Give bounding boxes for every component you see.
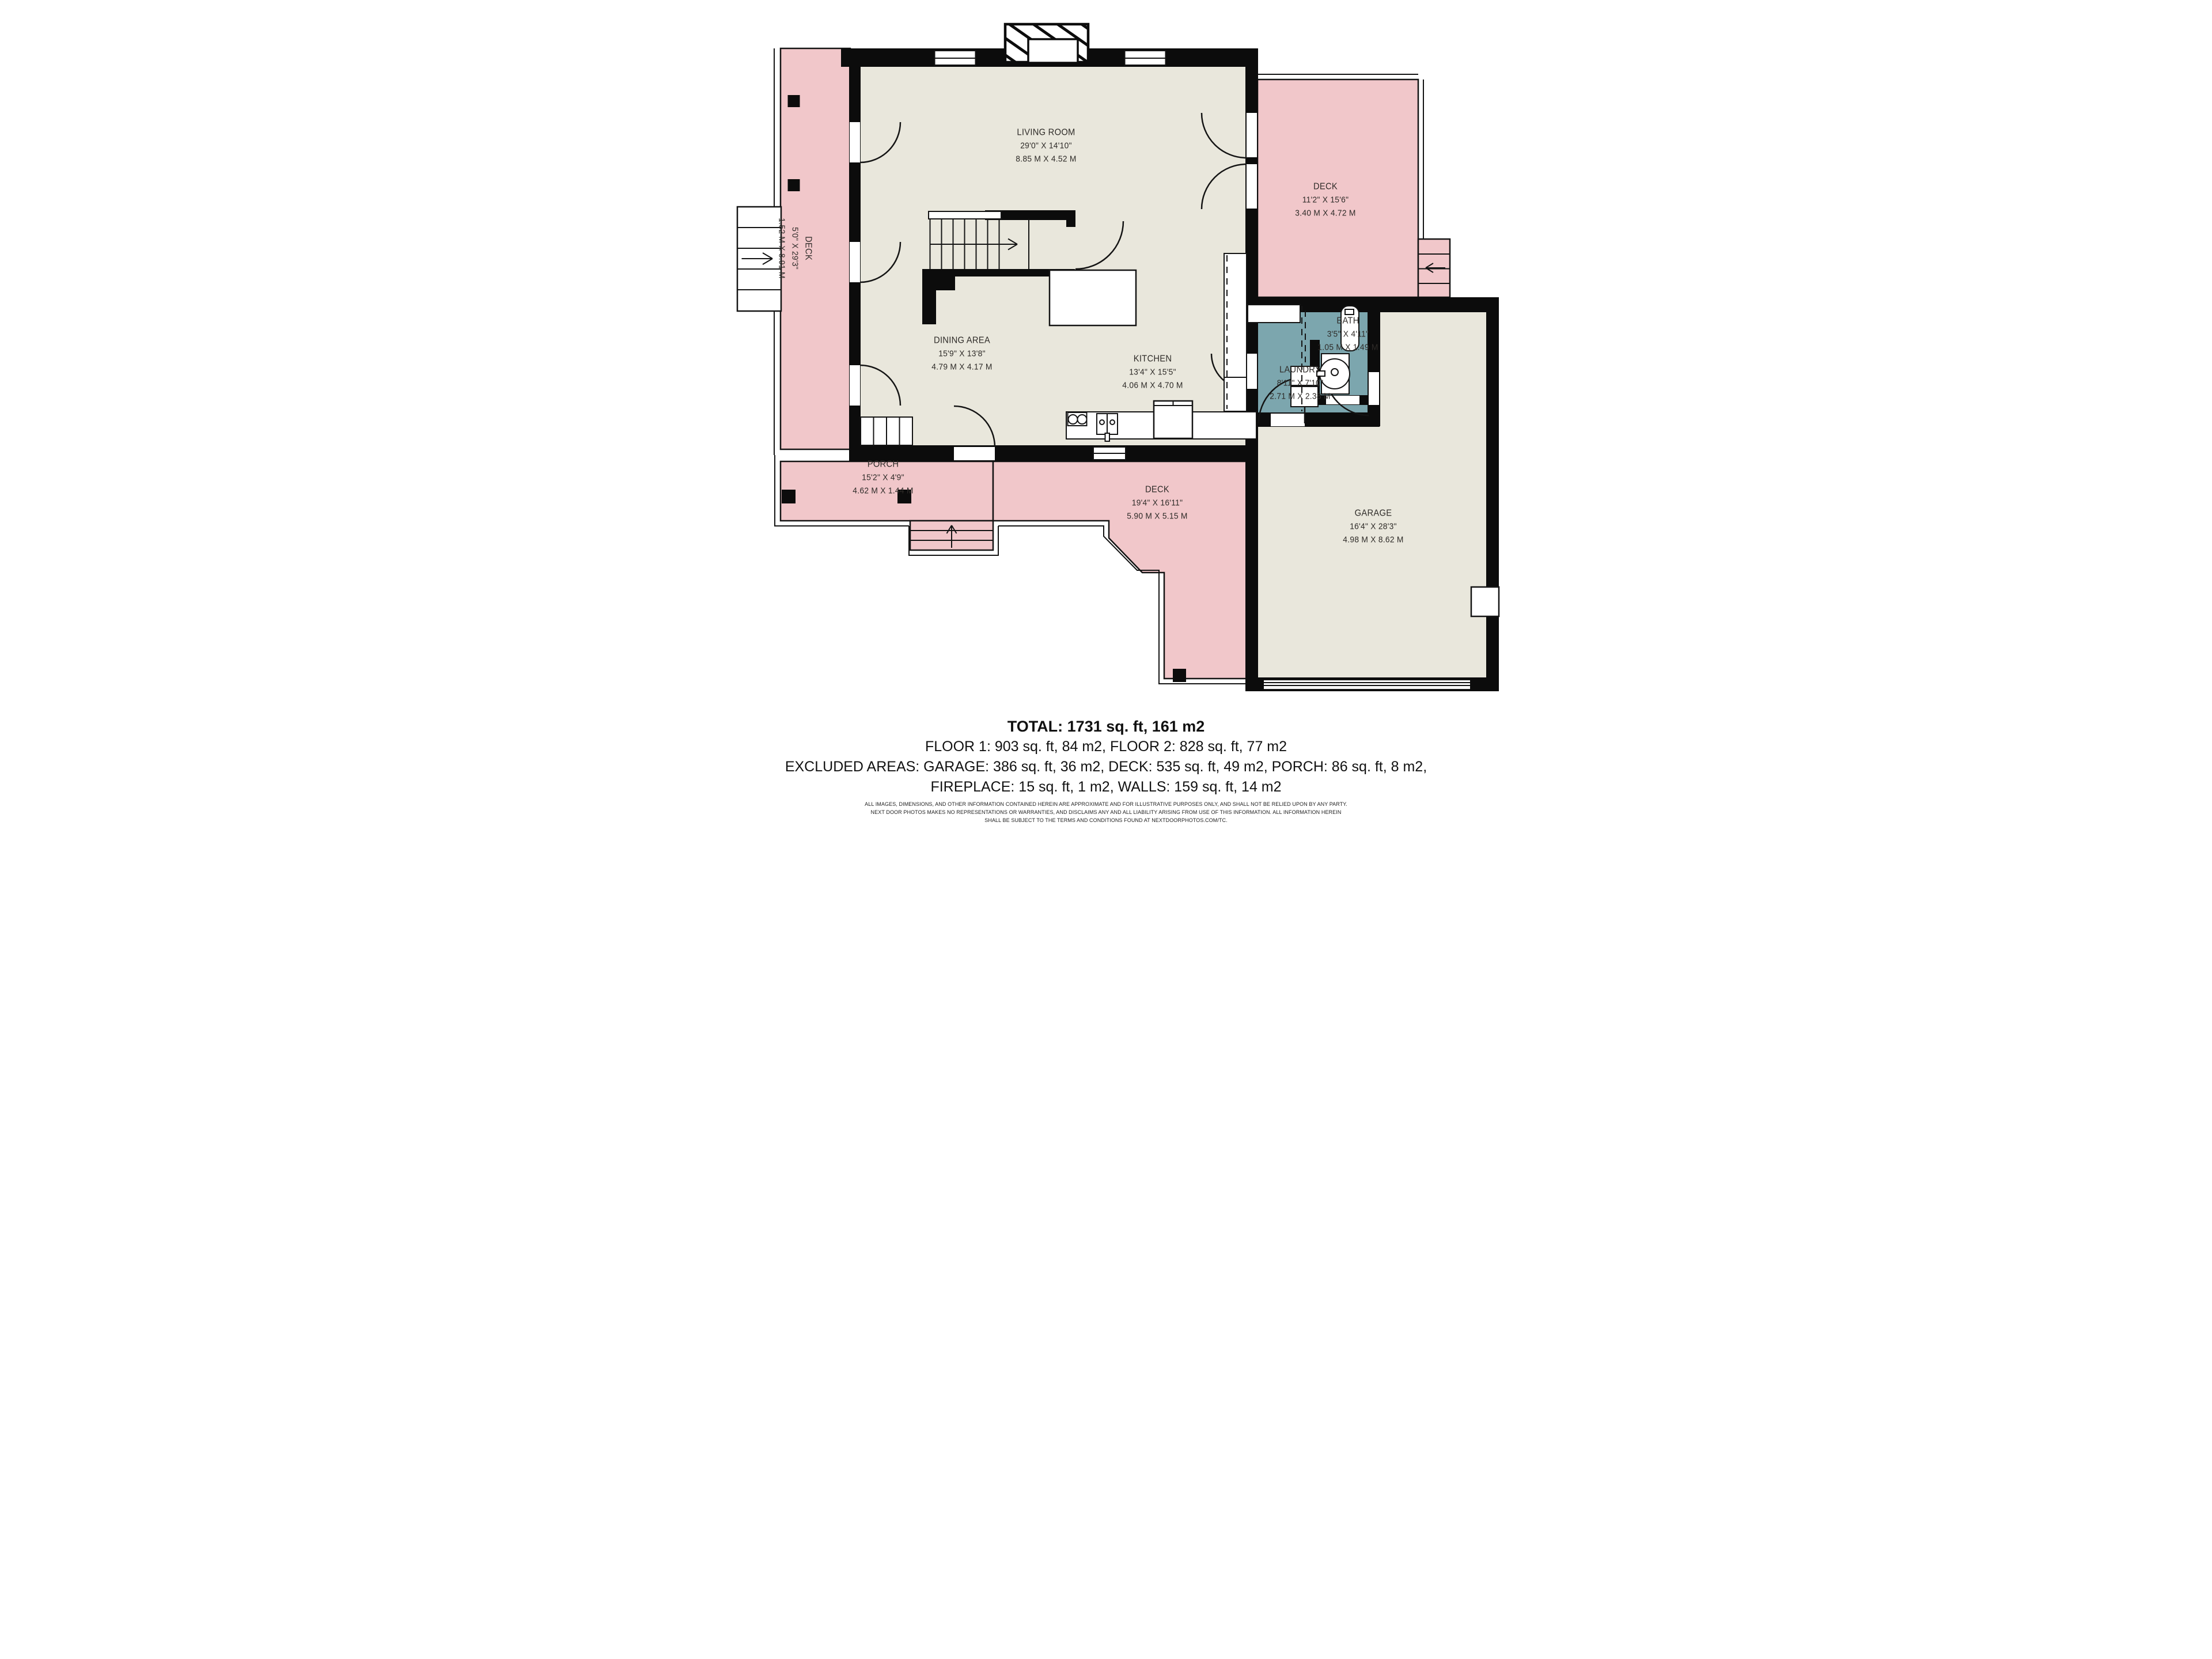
summary-total: TOTAL: 1731 sq. ft, 161 m2 <box>553 718 1659 736</box>
room-label-bath: BATH 3'5" X 4'11" 1.05 M X 1.49 M <box>1317 315 1378 354</box>
room-name: PORCH <box>853 458 913 472</box>
room-dims-metric: 2.71 M X 2.38 M <box>1270 390 1330 403</box>
laundry-counter <box>1248 305 1300 323</box>
room-name: LAUNDRY <box>1270 363 1330 377</box>
room-dims-imperial: 11'2" X 15'6" <box>1295 194 1355 207</box>
room-label-dining-area: DINING AREA 15'9" X 13'8" 4.79 M X 4.17 … <box>931 334 992 374</box>
summary-excluded-areas-2: FIREPLACE: 15 sq. ft, 1 m2, WALLS: 159 s… <box>553 779 1659 796</box>
room-dims-imperial: 15'9" X 13'8" <box>931 348 992 361</box>
room-label-laundry: LAUNDRY 8'11" X 7'10" 2.71 M X 2.38 M <box>1270 363 1330 403</box>
disclaimer-line-3: SHALL BE SUBJECT TO THE TERMS AND CONDIT… <box>553 817 1659 825</box>
faucet <box>1105 433 1110 441</box>
closet-shelving <box>861 417 912 445</box>
room-dims-metric: 3.40 M X 4.72 M <box>1295 207 1355 220</box>
room-dims-imperial: 3'5" X 4'11" <box>1317 328 1378 342</box>
floor-plan-drawing <box>553 0 1659 829</box>
deck-bottom-shape <box>993 461 1256 684</box>
summary-floors: FLOOR 1: 903 sq. ft, 84 m2, FLOOR 2: 828… <box>553 738 1659 755</box>
chimney-fireplace <box>1005 24 1088 63</box>
room-dims-imperial: 8'11" X 7'10" <box>1270 377 1330 391</box>
room-dims-metric: 1.05 M X 1.49 M <box>1317 341 1378 354</box>
room-label-porch: PORCH 15'2" X 4'9" 4.62 M X 1.44 M <box>853 458 913 498</box>
room-name: DECK <box>801 218 815 278</box>
stairs-right <box>1418 239 1450 297</box>
room-dims-metric: 8.85 M X 4.52 M <box>1016 153 1076 166</box>
room-dims-imperial: 16'4" X 28'3" <box>1343 521 1403 534</box>
area-summary: TOTAL: 1731 sq. ft, 161 m2 FLOOR 1: 903 … <box>553 718 1659 825</box>
room-name: LIVING ROOM <box>1016 126 1076 140</box>
disclaimer-line-2: NEXT DOOR PHOTOS MAKES NO REPRESENTATION… <box>553 809 1659 817</box>
stairs-porch <box>909 521 998 555</box>
room-name: BATH <box>1317 315 1378 328</box>
room-label-deck-left: DECK 5'0" X 29'3" 1.52 M X 8.91 M <box>775 218 815 278</box>
room-dims-imperial: 15'2" X 4'9" <box>853 472 913 485</box>
fridge <box>1154 401 1192 438</box>
main-floor-area <box>850 49 1256 461</box>
room-dims-imperial: 5'0" X 29'3" <box>788 218 801 278</box>
room-label-living-room: LIVING ROOM 29'0" X 14'10" 8.85 M X 4.52… <box>1016 126 1076 166</box>
room-dims-metric: 4.79 M X 4.17 M <box>931 361 992 374</box>
room-dims-metric: 1.52 M X 8.91 M <box>775 218 789 278</box>
room-dims-metric: 4.06 M X 4.70 M <box>1122 379 1183 392</box>
room-name: KITCHEN <box>1122 353 1183 366</box>
garage-side-door <box>1471 587 1499 616</box>
room-dims-metric: 4.62 M X 1.44 M <box>853 484 913 498</box>
disclaimer-line-1: ALL IMAGES, DIMENSIONS, AND OTHER INFORM… <box>553 801 1659 809</box>
room-dims-metric: 4.98 M X 8.62 M <box>1343 533 1403 547</box>
room-name: DECK <box>1127 483 1187 497</box>
floor-plan-page: LIVING ROOM 29'0" X 14'10" 8.85 M X 4.52… <box>553 0 1659 829</box>
room-label-deck-bottom: DECK 19'4" X 16'11" 5.90 M X 5.15 M <box>1127 483 1187 523</box>
room-label-deck-right: DECK 11'2" X 15'6" 3.40 M X 4.72 M <box>1295 180 1355 220</box>
room-name: DINING AREA <box>931 334 992 348</box>
room-label-kitchen: KITCHEN 13'4" X 15'5" 4.06 M X 4.70 M <box>1122 353 1183 392</box>
room-dims-imperial: 19'4" X 16'11" <box>1127 497 1187 510</box>
summary-excluded-areas: EXCLUDED AREAS: GARAGE: 386 sq. ft, 36 m… <box>553 759 1659 775</box>
kitchen-island <box>1050 270 1136 325</box>
room-name: DECK <box>1295 180 1355 194</box>
room-dims-metric: 5.90 M X 5.15 M <box>1127 510 1187 523</box>
room-name: GARAGE <box>1343 507 1403 521</box>
disclaimer: ALL IMAGES, DIMENSIONS, AND OTHER INFORM… <box>553 801 1659 825</box>
room-dims-imperial: 29'0" X 14'10" <box>1016 140 1076 153</box>
room-dims-imperial: 13'4" X 15'5" <box>1122 366 1183 380</box>
room-label-garage: GARAGE 16'4" X 28'3" 4.98 M X 8.62 M <box>1343 507 1403 547</box>
